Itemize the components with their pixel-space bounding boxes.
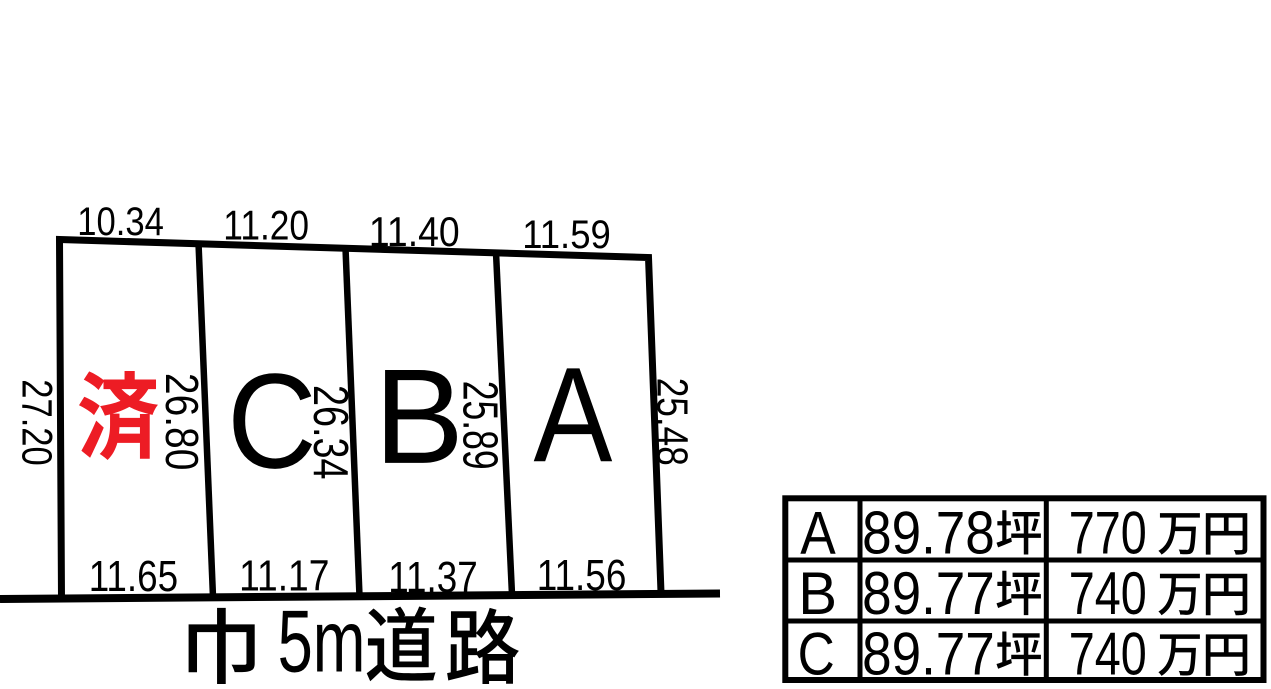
- svg-text:26.80: 26.80: [156, 373, 208, 471]
- svg-text:770: 770: [1069, 499, 1147, 566]
- svg-text:25.48: 25.48: [648, 378, 697, 466]
- svg-text:C: C: [798, 621, 835, 688]
- svg-text:B: B: [798, 560, 837, 627]
- svg-text:5m: 5m: [278, 592, 366, 689]
- svg-text:A: A: [800, 499, 836, 566]
- svg-text:11.59: 11.59: [522, 213, 611, 257]
- svg-text:C: C: [227, 346, 317, 497]
- svg-text:89.78: 89.78: [862, 499, 995, 566]
- svg-text:27.20: 27.20: [13, 379, 61, 466]
- svg-text:11.37: 11.37: [388, 553, 477, 602]
- svg-text:11.65: 11.65: [89, 552, 178, 601]
- svg-text:A: A: [534, 339, 613, 490]
- svg-text:740: 740: [1069, 560, 1147, 627]
- svg-text:740: 740: [1069, 621, 1147, 688]
- svg-text:89.77: 89.77: [862, 621, 995, 688]
- svg-text:B: B: [374, 341, 464, 492]
- svg-text:10.34: 10.34: [77, 200, 164, 244]
- svg-text:11.40: 11.40: [369, 208, 460, 255]
- svg-text:89.77: 89.77: [862, 560, 995, 627]
- svg-text:11.56: 11.56: [537, 551, 627, 600]
- svg-text:11.20: 11.20: [223, 201, 309, 248]
